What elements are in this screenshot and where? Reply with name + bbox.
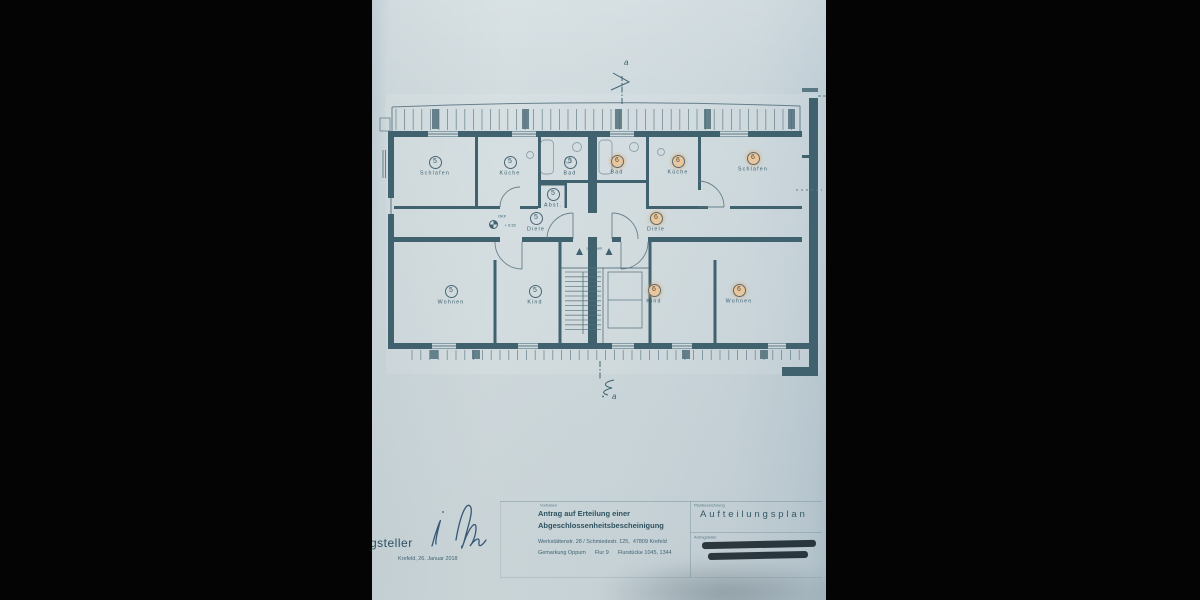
paper-sheet: a a OKF + 5.52 Luftraum 16 5Schlafen5Küc… xyxy=(372,0,826,600)
titleblock-line xyxy=(500,501,822,502)
date-line: Krefeld, 26. Januar 2018 xyxy=(398,555,458,561)
level-note-line1: OKF xyxy=(498,214,506,219)
address-line: Werkstättenstr. 28 / Schmiedestr. 125, 4… xyxy=(538,538,667,544)
stair-step-count: 16 xyxy=(589,258,599,264)
photo-background: a a OKF + 5.52 Luftraum 16 5Schlafen5Küc… xyxy=(0,0,1200,600)
stair-void-label: Luftraum xyxy=(587,246,602,251)
level-marker-icon xyxy=(489,220,498,229)
parcel-line: Gemarkung Oppum Flur 9 Flurstücke 1045, … xyxy=(538,549,672,555)
titleblock-line xyxy=(690,532,822,533)
applicant-label: Antragsteller xyxy=(694,535,716,540)
section-marker-a-top: a xyxy=(624,58,628,67)
section-marker-a-bottom: a xyxy=(612,392,616,401)
project-label: Vorhaben xyxy=(540,503,557,508)
plan-label: Planbezeichnung xyxy=(694,503,725,508)
project-line1: Antrag auf Erteilung einer xyxy=(538,509,630,518)
project-line2: Abgeschlossenheitsbescheinigung xyxy=(538,521,664,530)
plan-title: Aufteilungsplan xyxy=(700,508,808,519)
applicant-word-partial: gsteller xyxy=(372,536,413,550)
level-note-line2: + 5.52 xyxy=(505,223,516,228)
signature xyxy=(412,496,522,558)
